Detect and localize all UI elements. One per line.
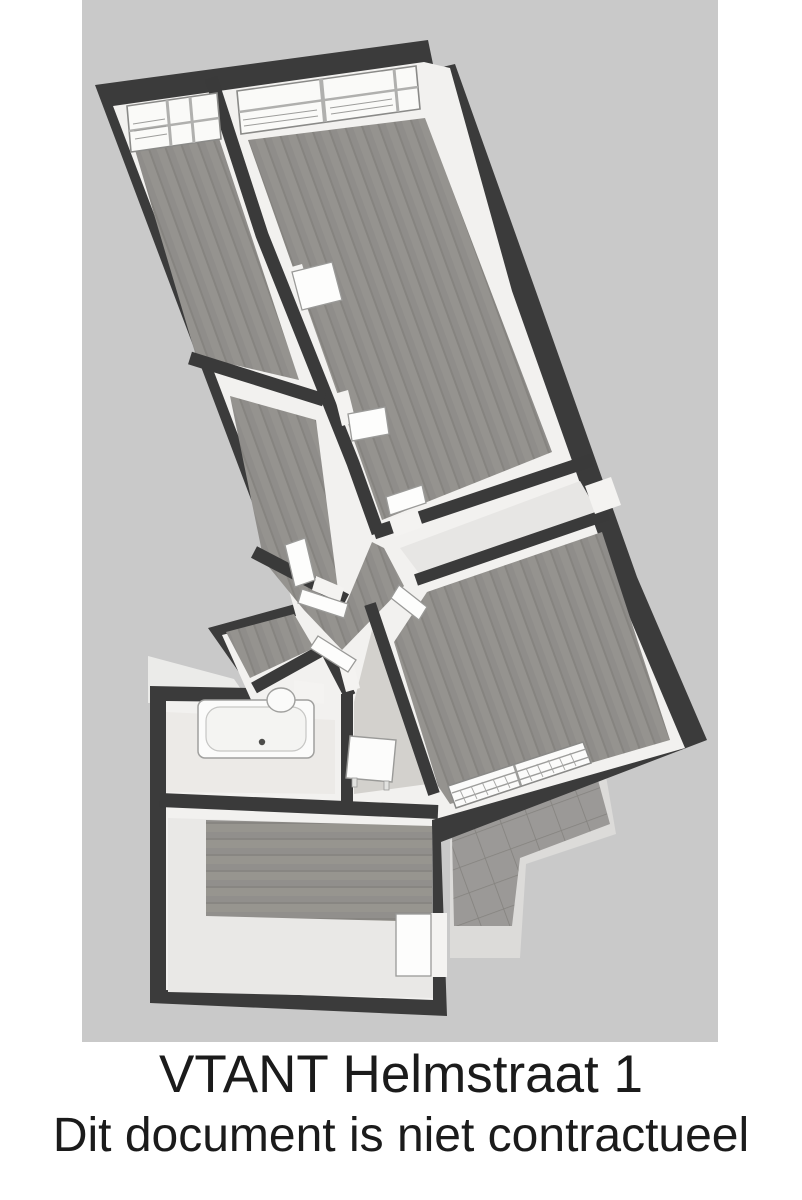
kitchen-door-leaf bbox=[396, 914, 431, 976]
floor-plan-canvas bbox=[0, 0, 802, 1200]
page: VTANT Helmstraat 1 Dit document is niet … bbox=[0, 0, 802, 1200]
bathtub-drain bbox=[259, 739, 265, 745]
caption: VTANT Helmstraat 1 Dit document is niet … bbox=[0, 1044, 802, 1166]
kitchen-door bbox=[396, 913, 447, 977]
sink bbox=[267, 688, 295, 712]
kitchen-door-gap bbox=[431, 913, 447, 977]
caption-line2: Dit document is niet contractueel bbox=[0, 1106, 802, 1166]
floor-kitchen-wood bbox=[206, 820, 432, 922]
bathtub-basin bbox=[206, 707, 306, 751]
caption-line1: VTANT Helmstraat 1 bbox=[0, 1044, 802, 1106]
